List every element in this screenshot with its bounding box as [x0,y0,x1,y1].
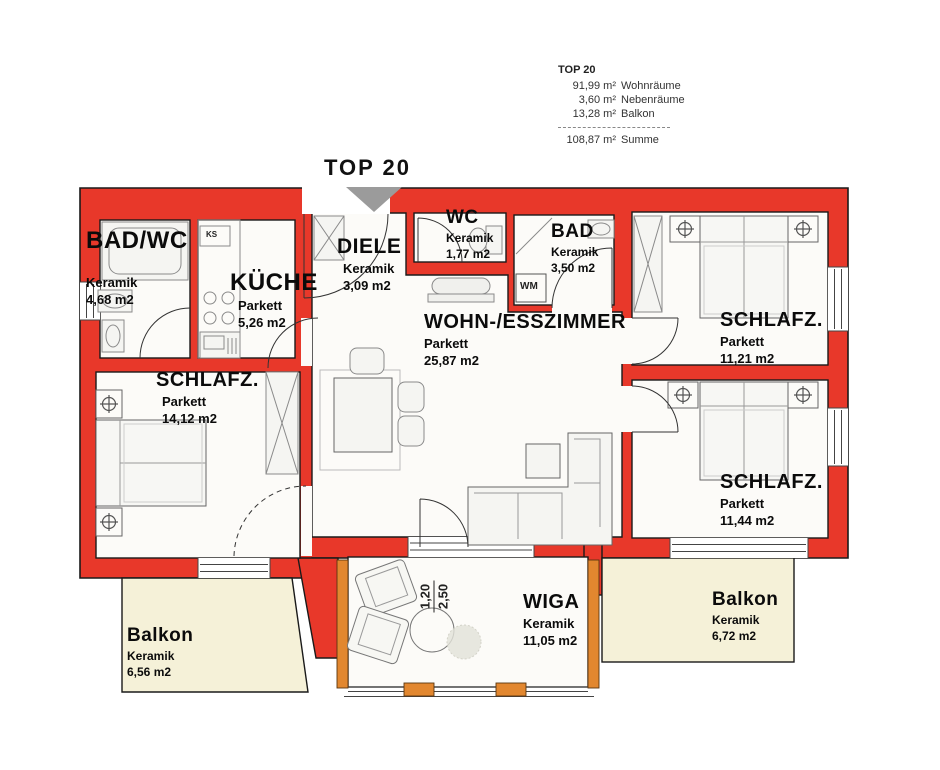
legend-title: TOP 20 [558,64,733,76]
room-label-schlafz-topright: SCHLAFZ. Parkett11,21 m2 [720,310,823,368]
entrance [302,187,402,214]
legend-divider [558,127,670,128]
plan-title: TOP 20 [324,155,411,181]
room-label-badwc: BAD/WC Keramik4,68 m2 [86,228,188,309]
floor-plan-page: TOP 20 91,99 m² Wohnräume 3,60 m² Nebenr… [0,0,940,770]
plant-icon [447,625,481,659]
room-label-bad: BAD Keramik3,50 m2 [551,222,598,276]
wiga-post-left [337,560,348,688]
area-legend: TOP 20 91,99 m² Wohnräume 3,60 m² Nebenr… [558,64,733,147]
legend-row: 13,28 m² Balkon [558,107,733,121]
room-label-diele: DIELE Keramik3,09 m2 [337,236,401,295]
room-label-balkon-left: Balkon Keramik6,56 m2 [127,626,193,680]
wiga-mullion-2 [496,683,526,696]
fridge-label: KS [206,230,217,239]
room-label-kueche: KÜCHE Parkett5,26 m2 [230,270,318,332]
room-label-wiga: WIGA Keramik11,05 m2 [523,592,579,650]
room-label-balkon-right: Balkon Keramik6,72 m2 [712,590,778,644]
room-label-schlafz-bottomright: SCHLAFZ. Parkett11,44 m2 [720,472,823,530]
washer-label: WM [520,281,538,292]
wiga-mullion-1 [404,683,434,696]
legend-row: 3,60 m² Nebenräume [558,93,733,107]
hall-sideboard [428,278,494,302]
wiga-post-right [588,560,599,688]
legend-row: 91,99 m² Wohnräume [558,79,733,93]
room-label-wc: WC Keramik1,77 m2 [446,208,493,262]
legend-total-row: 108,87 m² Summe [558,133,733,147]
room-label-schlafz-left: SCHLAFZ. Parkett14,12 m2 [156,370,259,428]
room-label-wohnesszimmer: WOHN-/ESSZIMMER Parkett25,87 m2 [424,312,626,370]
wiga-dimension: 1,20 2,50 [418,571,451,623]
